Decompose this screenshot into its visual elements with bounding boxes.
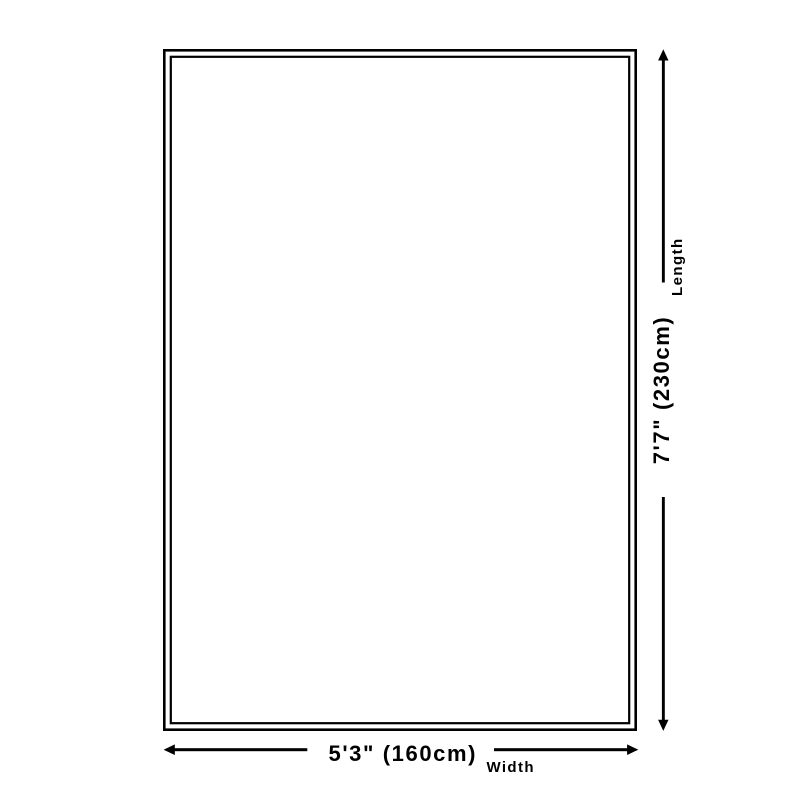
svg-text:Width: Width: [486, 759, 535, 776]
svg-text:7'7" (230cm): 7'7" (230cm): [649, 316, 674, 465]
svg-text:Length: Length: [669, 237, 686, 296]
svg-text:5'3" (160cm): 5'3" (160cm): [328, 741, 477, 766]
